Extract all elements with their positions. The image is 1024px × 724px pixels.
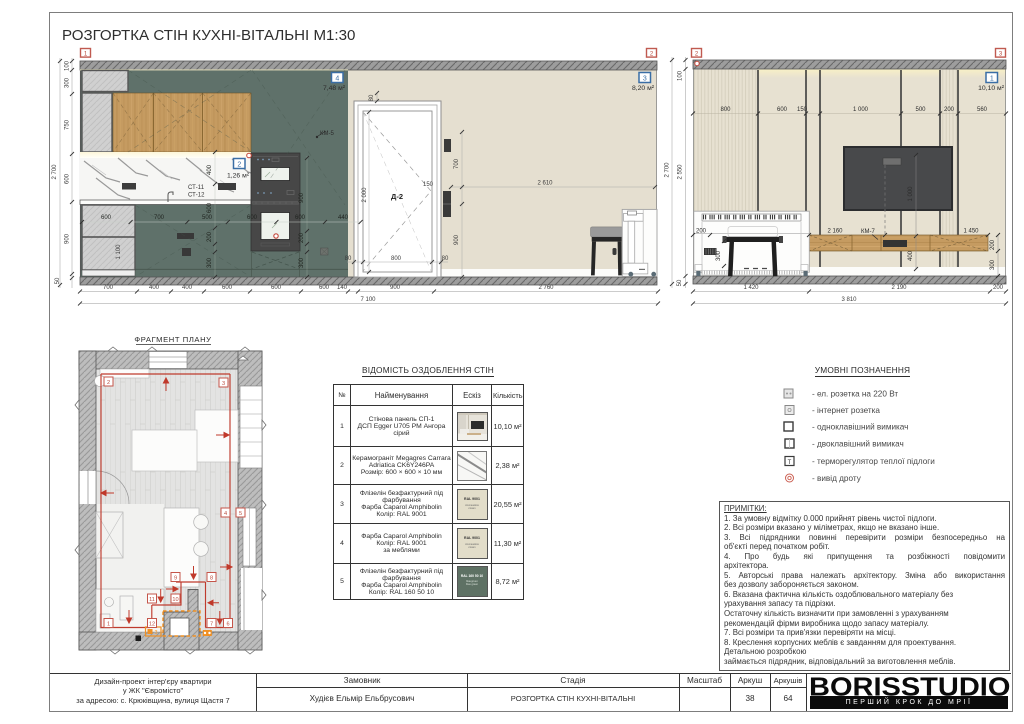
svg-text:900: 900: [390, 285, 401, 291]
svg-text:8: 8: [210, 576, 213, 582]
svg-text:560: 560: [977, 107, 988, 113]
svg-text:11: 11: [149, 597, 155, 603]
svg-text:4: 4: [335, 76, 339, 83]
svg-text:Д-2: Д-2: [391, 192, 403, 201]
svg-text:500: 500: [202, 215, 213, 221]
svg-text:- терморегулятор теплої підлог: - терморегулятор теплої підлоги: [812, 457, 935, 466]
svg-text:150: 150: [797, 107, 808, 113]
svg-text:ФРАГМЕНТ ПЛАНУ: ФРАГМЕНТ ПЛАНУ: [134, 335, 211, 344]
svg-text:- вивід дроту: - вивід дроту: [812, 474, 862, 483]
svg-text:400: 400: [149, 285, 160, 291]
svg-text:СТ-11: СТ-11: [188, 185, 205, 191]
svg-text:КМ-5: КМ-5: [320, 131, 334, 137]
svg-text:600: 600: [247, 215, 258, 221]
svg-text:200: 200: [207, 231, 213, 242]
svg-text:7 100: 7 100: [360, 297, 376, 303]
svg-text:2 700: 2 700: [665, 162, 671, 178]
svg-text:2: 2: [107, 380, 110, 386]
svg-text:1 000: 1 000: [853, 107, 869, 113]
svg-text:800: 800: [720, 107, 731, 113]
svg-text:80: 80: [369, 94, 375, 101]
svg-text:700: 700: [103, 285, 114, 291]
svg-text:- інтернет розетка: - інтернет розетка: [812, 406, 880, 415]
svg-text:2 000: 2 000: [362, 187, 368, 203]
svg-text:3 810: 3 810: [841, 297, 857, 303]
svg-text:2 190: 2 190: [891, 285, 907, 291]
svg-text:80: 80: [345, 256, 352, 262]
svg-text:1,26 м²: 1,26 м²: [227, 173, 250, 180]
svg-text:3: 3: [643, 76, 647, 83]
svg-text:900: 900: [299, 192, 305, 203]
svg-text:150: 150: [423, 182, 434, 188]
svg-text:9: 9: [174, 576, 177, 582]
svg-text:600: 600: [101, 215, 112, 221]
svg-text:- двоклавішний вимикач: - двоклавішний вимикач: [812, 440, 904, 449]
svg-text:600: 600: [271, 285, 282, 291]
svg-text:КМ-7: КМ-7: [861, 229, 875, 235]
svg-text:1 420: 1 420: [743, 285, 759, 291]
svg-text:2 700: 2 700: [52, 164, 58, 180]
svg-text:600: 600: [295, 215, 306, 221]
svg-text:3: 3: [222, 381, 225, 387]
svg-text:300: 300: [990, 259, 996, 270]
svg-text:200: 200: [990, 239, 996, 250]
svg-text:50: 50: [55, 277, 61, 284]
svg-text:400: 400: [908, 250, 914, 261]
svg-text:80: 80: [442, 256, 449, 262]
svg-text:600: 600: [65, 173, 71, 184]
svg-text:1: 1: [107, 622, 110, 628]
svg-text:600: 600: [319, 285, 330, 291]
svg-text:700: 700: [154, 215, 165, 221]
svg-text:12: 12: [149, 622, 155, 628]
svg-text:200: 200: [944, 107, 955, 113]
svg-text:2 550: 2 550: [678, 164, 684, 180]
svg-text:200: 200: [696, 229, 707, 235]
svg-text:- одноклавішний вимикач: - одноклавішний вимикач: [812, 423, 908, 432]
svg-text:600: 600: [207, 202, 213, 213]
svg-text:50: 50: [677, 279, 683, 286]
svg-text:2 760: 2 760: [538, 285, 554, 291]
svg-text:900: 900: [65, 233, 71, 244]
svg-text:1 450: 1 450: [963, 229, 979, 235]
svg-text:140: 140: [337, 285, 348, 291]
svg-text:500: 500: [915, 107, 926, 113]
svg-text:300: 300: [207, 257, 213, 268]
svg-text:400: 400: [182, 285, 193, 291]
svg-text:400: 400: [207, 164, 213, 175]
svg-text:200: 200: [993, 285, 1004, 291]
svg-text:600: 600: [777, 107, 788, 113]
svg-text:1 000: 1 000: [908, 186, 914, 202]
svg-text:700: 700: [454, 158, 460, 169]
svg-text:10: 10: [172, 597, 178, 603]
svg-text:600: 600: [222, 285, 233, 291]
svg-text:440: 440: [338, 215, 349, 221]
svg-text:5: 5: [239, 511, 242, 517]
svg-text:300: 300: [299, 257, 305, 268]
svg-text:200: 200: [299, 232, 305, 243]
svg-text:100: 100: [65, 60, 71, 71]
svg-text:7,48 м²: 7,48 м²: [323, 85, 346, 92]
svg-text:300: 300: [716, 250, 722, 261]
svg-text:7: 7: [210, 622, 213, 628]
svg-text:Т: Т: [788, 460, 792, 466]
svg-text:- ел. розетка на 220 Вт: - ел. розетка на 220 Вт: [812, 390, 898, 399]
svg-text:2: 2: [237, 162, 241, 169]
svg-text:100: 100: [678, 70, 684, 81]
svg-text:4: 4: [224, 511, 227, 517]
svg-text:2 610: 2 610: [537, 181, 553, 187]
svg-text:750: 750: [65, 119, 71, 130]
svg-text:1: 1: [990, 76, 994, 83]
svg-text:300: 300: [65, 77, 71, 88]
svg-text:8,20 м²: 8,20 м²: [632, 85, 655, 92]
svg-text:З: З: [154, 630, 157, 636]
svg-text:1 100: 1 100: [116, 244, 122, 260]
svg-text:СТ-12: СТ-12: [188, 193, 205, 199]
svg-text:900: 900: [454, 234, 460, 245]
svg-text:2 160: 2 160: [827, 229, 843, 235]
svg-text:6: 6: [226, 622, 229, 628]
svg-text:800: 800: [391, 256, 402, 262]
svg-text:10,10 м²: 10,10 м²: [978, 85, 1005, 92]
